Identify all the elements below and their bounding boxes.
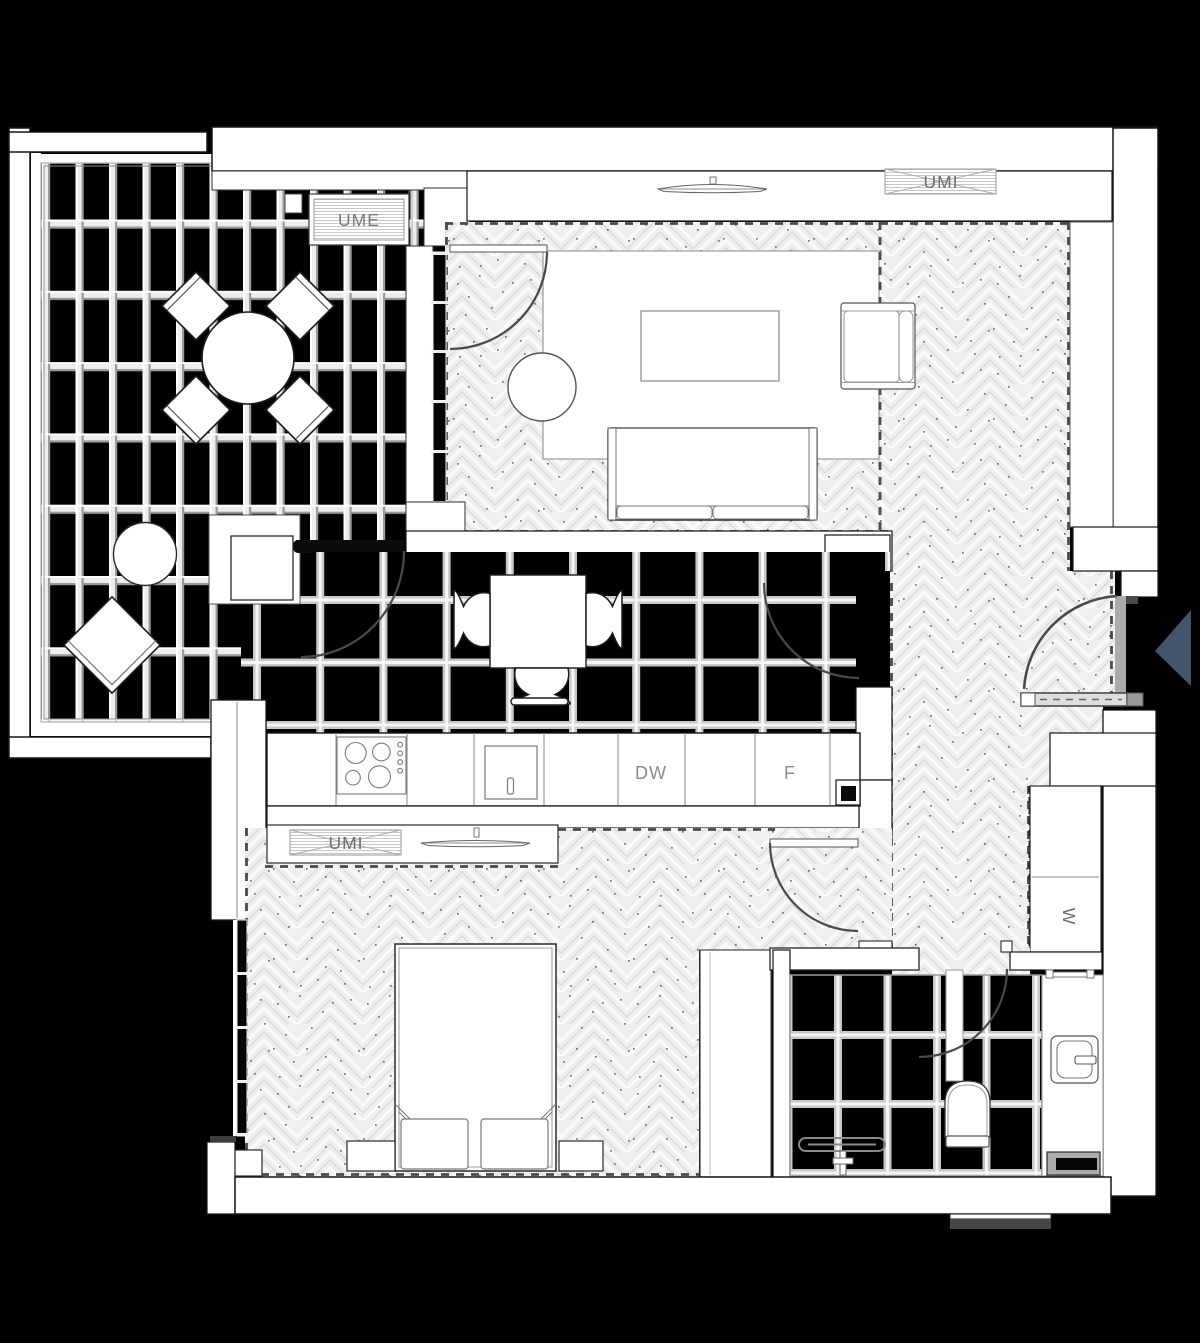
svg-text:UMI: UMI xyxy=(328,833,363,853)
svg-text:UMI: UMI xyxy=(923,172,958,192)
svg-text:W: W xyxy=(1059,908,1079,925)
svg-text:DW: DW xyxy=(635,763,667,783)
svg-text:UME: UME xyxy=(338,210,380,230)
svg-text:F: F xyxy=(784,763,796,783)
